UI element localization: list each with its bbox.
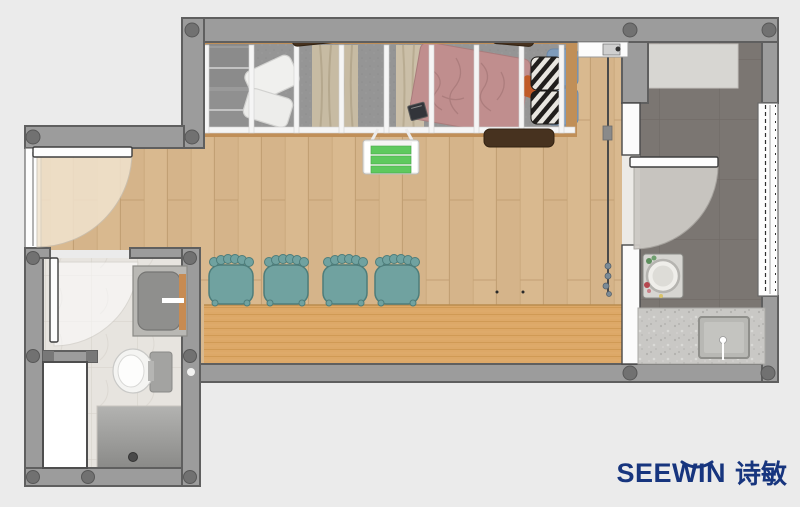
kitchen-sink: [699, 317, 749, 360]
window-wall: [758, 103, 778, 296]
wall-top: [182, 18, 778, 42]
wall-divider-a: [622, 103, 640, 155]
stool: [323, 255, 368, 307]
shower-drain: [129, 453, 138, 462]
floorplan-drawing: [0, 0, 800, 507]
bed-frame-edge: [566, 44, 574, 133]
kitchen-mat: [648, 44, 738, 88]
storage-cabinet: [43, 362, 87, 468]
stool: [209, 255, 254, 307]
flush-plate: [187, 368, 195, 376]
raised-platform: [204, 305, 622, 364]
kitchen-counter: [638, 308, 765, 364]
brand-logo: SEEWIN 诗敏: [616, 460, 787, 487]
brand-wordmark: SEEWIN: [616, 460, 726, 487]
stool: [264, 255, 309, 307]
wall-bottom: [200, 364, 778, 382]
wall-right-top: [762, 42, 778, 103]
wall-entry: [25, 126, 184, 148]
round-wash-basin: [643, 254, 683, 298]
vanity-sink: [133, 266, 187, 336]
wall-bath-bottom: [25, 468, 200, 486]
loft-bedroom: [204, 25, 628, 147]
wall-bath-top-b: [130, 248, 182, 258]
wall-bath-inner: [43, 351, 97, 362]
faucet: [720, 337, 727, 344]
ladder-steps: [371, 146, 411, 173]
wall-loft-left: [182, 18, 204, 148]
brand-cjk: 诗敏: [735, 461, 787, 487]
shoe-shelf: [578, 42, 628, 57]
floorplan-canvas: SEEWIN 诗敏: [0, 0, 800, 507]
stool: [375, 255, 420, 307]
brand-swoosh-icon: [680, 460, 714, 471]
wall-bath-left: [25, 248, 43, 486]
wardrobe-shelf: [206, 45, 252, 133]
shower-floor: [97, 406, 182, 468]
wall-divider-b: [622, 245, 640, 364]
